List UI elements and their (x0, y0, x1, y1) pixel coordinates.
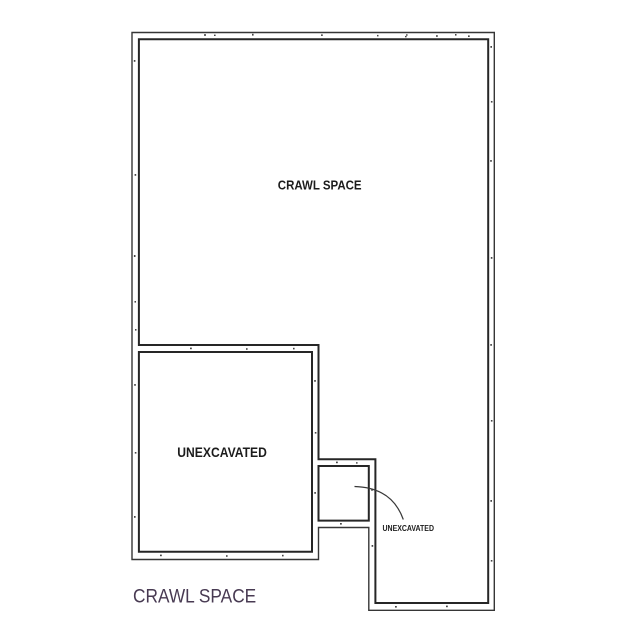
svg-text:CRAWL SPACE: CRAWL SPACE (133, 586, 256, 608)
svg-text:UNEXCAVATED: UNEXCAVATED (383, 524, 435, 533)
svg-text:UNEXCAVATED: UNEXCAVATED (177, 445, 267, 460)
svg-text:CRAWL SPACE: CRAWL SPACE (278, 178, 362, 193)
